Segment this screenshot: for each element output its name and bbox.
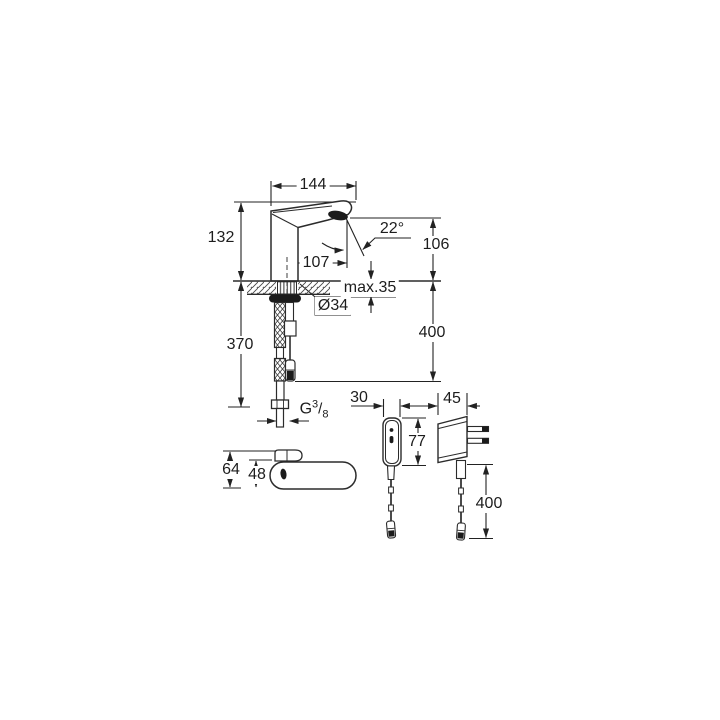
control-box-slot: [390, 436, 394, 443]
hose-braid-lower: [275, 359, 286, 382]
spray-angle-line: [346, 218, 364, 256]
dim-label-cable-drop-under: 400: [416, 324, 449, 342]
dimension-lines: [223, 181, 493, 539]
cable-joint: [389, 487, 394, 493]
dim-label-outlet-height: 106: [420, 236, 453, 254]
faucet-dimension-drawing: [0, 0, 720, 720]
angle-leader: [363, 238, 411, 250]
dim-label-spout-projection: 107: [300, 254, 333, 272]
hose-braid-upper: [275, 303, 286, 348]
dim-label-hose-length: 370: [224, 336, 257, 354]
deck-hatch-left: [247, 282, 276, 294]
dim-label-plug-width: 45: [440, 390, 464, 408]
hose-union-nut: [272, 400, 289, 409]
dim-label-thread-size: G3/8: [297, 399, 332, 422]
dim-label-spout-reach: 144: [297, 176, 330, 194]
cable-fitting-box: [285, 321, 297, 336]
deck-hatch-right: [298, 282, 330, 294]
plug-band: [457, 530, 465, 531]
lever-top-view: [275, 450, 302, 461]
dim-label-control-box-width: 30: [347, 389, 371, 407]
dim-label-total-height: 132: [205, 229, 238, 247]
hose-break-tube: [277, 348, 284, 359]
plug-dark-tip: [388, 530, 395, 537]
angle-arc-arrow: [322, 243, 344, 250]
cable-joint: [459, 506, 464, 512]
dim-label-control-box-height: 77: [405, 433, 429, 451]
plug-cable: [456, 479, 465, 541]
plug-body: [438, 417, 467, 463]
threaded-shank: [278, 282, 297, 294]
cable-joint: [459, 488, 464, 494]
thread-denominator: 8: [322, 409, 328, 421]
power-plug: [438, 417, 489, 541]
plug-dark-tip: [457, 532, 463, 538]
battery-control-box: [383, 418, 401, 538]
dim-label-spray-angle: 22°: [377, 220, 407, 238]
hose-end-tube: [277, 381, 285, 400]
thread-letter: G: [300, 401, 312, 418]
plug-neck: [457, 461, 466, 479]
dim-label-hole-diameter: Ø34: [315, 297, 351, 315]
plug-pin-top-tip: [482, 427, 489, 432]
control-box-cable: [386, 480, 395, 539]
dim-label-plug-cable-drop: 400: [473, 495, 506, 513]
thread-stub-g38: [277, 409, 284, 428]
dim-label-topview-total-depth: 64: [219, 461, 243, 479]
cable-sleeve: [286, 303, 294, 322]
cable-joint: [389, 505, 394, 511]
mounting-flange: [269, 295, 301, 303]
faucet-top-view: [270, 450, 356, 489]
control-box-led: [390, 428, 394, 432]
plug-pin-bottom-tip: [482, 438, 489, 443]
cable-connector-dark: [287, 371, 294, 380]
sensor-cable: [285, 303, 297, 382]
dim-label-max-deck-thickness: max.35: [341, 279, 399, 297]
dim-label-topview-body-depth: 48: [245, 466, 269, 484]
technical-drawing-page: 144 132 107 22° 106 max.35 Ø34 370 400 G…: [0, 0, 720, 720]
control-box-neck: [388, 466, 395, 480]
